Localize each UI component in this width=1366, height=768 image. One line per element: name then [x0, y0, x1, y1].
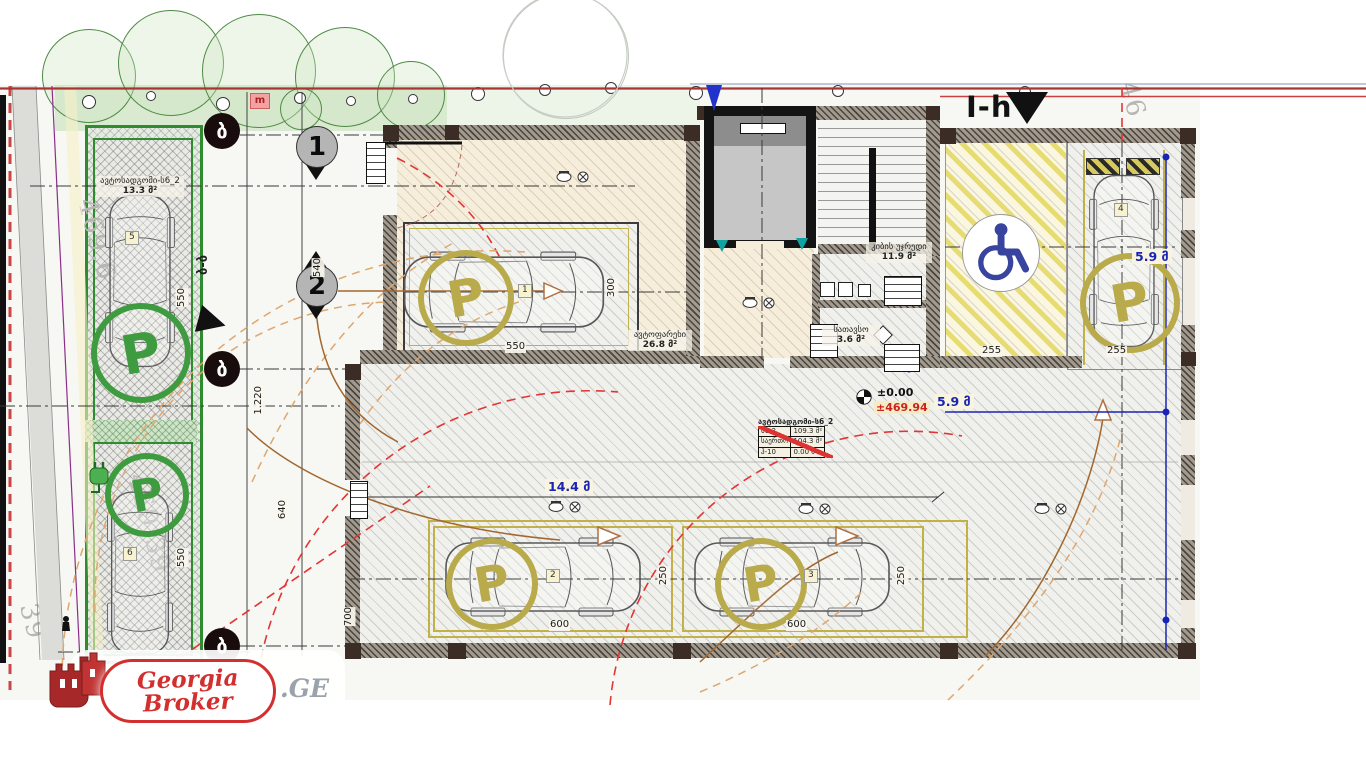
room-area-value: 13.3 მ² [123, 186, 157, 196]
room-name: სათავსო [822, 325, 880, 335]
metric-dimension-label: 5.9 მ [1132, 249, 1172, 264]
fixture-icons [1034, 500, 1072, 513]
room-area-value: 26.8 მ² [643, 340, 677, 350]
parking-number-plate: 1 [518, 284, 532, 298]
shrub-icon [408, 94, 418, 104]
wall [1181, 540, 1195, 600]
dimension-label: 300 [606, 278, 619, 297]
section-flag-label: I-h [966, 90, 1012, 124]
left-edge-bar [0, 95, 6, 663]
column-pier [345, 643, 361, 659]
area-table-title: ავტოსადგომი-ს6_2 [758, 417, 833, 426]
dimension-label: 540 [312, 258, 325, 277]
axis-bubble: ბ [204, 113, 240, 149]
spot-border [428, 636, 968, 638]
shrub-icon [216, 97, 230, 111]
ev-charger-icon [86, 460, 112, 496]
parking-number-plate: 3 [804, 569, 818, 583]
logo-suffix: .GE [280, 674, 329, 703]
column-pier [383, 125, 399, 141]
fixture-box [838, 282, 853, 297]
spot-border [1083, 150, 1085, 365]
column-pier [448, 643, 466, 659]
column-pier [345, 364, 361, 380]
room-area-label: კიბის უჯრედი11.9 მ² [866, 242, 932, 263]
area-table: ავტოსადგომი-ს6_2 ს6-2109.3 მ² საერთო104.… [758, 417, 833, 458]
dimension-label: 255 [981, 346, 1002, 357]
table-strike [758, 426, 833, 458]
parking-number-plate: 6 [123, 547, 137, 561]
section-cut-label: ბ-ბ [196, 255, 211, 275]
dimension-label: 250 [658, 566, 671, 585]
axis-bubble: ბ [204, 351, 240, 387]
fixture-icons [742, 294, 780, 307]
column-pier [940, 643, 958, 659]
wall [383, 215, 397, 364]
column-pier [926, 106, 940, 120]
wall [1181, 230, 1195, 258]
room-area-value: 3.6 მ² [837, 335, 865, 345]
dimension-label: 550 [505, 342, 526, 353]
fixture-icons [548, 498, 586, 511]
spot-border [409, 228, 629, 229]
metric-dimension-label: 5.9 მ [934, 394, 974, 409]
wheel-stop [1126, 158, 1160, 175]
spot-border [428, 520, 968, 522]
elevator-counterweight [740, 123, 786, 134]
dimension-label: 550 [176, 548, 189, 567]
fixture-icons [556, 168, 594, 181]
wall [1181, 143, 1195, 198]
floor-plan: PPPPPP123456ბბბ12 5503006002506002502552… [0, 0, 1366, 768]
utility-tag: m [250, 93, 270, 109]
wall [686, 140, 700, 356]
spot-border [682, 526, 924, 528]
wall [700, 356, 764, 368]
column-pier [1178, 643, 1196, 659]
spot-border [682, 526, 684, 632]
shrub-icon [146, 91, 156, 101]
dimension-label: 255 [1106, 346, 1127, 357]
spot-border [922, 526, 924, 632]
dimension-label: 600 [549, 620, 570, 631]
spot-border [966, 520, 968, 638]
wall [345, 643, 1196, 658]
dimension-label: 600 [786, 620, 807, 631]
schedule-tag [366, 142, 386, 184]
column-pier [684, 125, 700, 141]
shrub-icon [471, 87, 485, 101]
wall [926, 106, 940, 256]
wall [1181, 325, 1195, 420]
parking-number-plate: 5 [125, 231, 139, 245]
wheelchair-icon [968, 220, 1032, 284]
elevator-door-gap [736, 241, 784, 249]
fixture-box [820, 282, 835, 297]
level-marker-icon [855, 388, 873, 406]
column-pier [673, 643, 691, 659]
room-name: ავტოსადგომი-ს6_2 [96, 176, 184, 186]
metric-dimension-label: 14.4 მ [545, 479, 593, 494]
wall [940, 356, 1082, 368]
dimension-label: 250 [896, 566, 909, 585]
wheel-stop [1086, 158, 1120, 175]
wall [345, 516, 360, 658]
level-value: ±0.00 [877, 386, 913, 399]
spot-border [428, 520, 430, 638]
wall [926, 256, 940, 362]
shrub-icon [294, 92, 306, 104]
fixture-box [858, 284, 871, 297]
wall [940, 128, 1196, 143]
dimension-label: 1.220 [253, 386, 266, 415]
room-area-label: ავტოსადგომი-ს6_213.3 მ² [96, 176, 184, 197]
column-pier [1180, 128, 1196, 144]
room-name: ავტოფარეხი [628, 330, 692, 340]
column-pier [940, 128, 956, 144]
room-area-label: ავტოფარეხი26.8 მ² [628, 330, 692, 351]
floor [85, 420, 197, 442]
dimension-label: 640 [277, 500, 290, 519]
column-pier [445, 125, 459, 140]
schedule-tag [884, 276, 922, 306]
shrub-icon [605, 82, 617, 94]
dimension-label: 550 [176, 288, 189, 307]
level-absolute-value: ±469.94 [874, 401, 930, 414]
spot-border [628, 228, 629, 346]
wall [345, 364, 360, 480]
entrance-arrow-icon [706, 85, 722, 111]
wall [360, 350, 700, 364]
column-pier [1181, 352, 1196, 366]
spot-border [433, 526, 673, 528]
shrub-icon [689, 86, 703, 100]
stair-center-wall [869, 148, 876, 250]
wall [383, 125, 700, 140]
logo: Georgia Broker [100, 659, 276, 723]
logo-line2: Broker [143, 689, 233, 715]
spot-border [671, 526, 673, 632]
wall [1181, 628, 1195, 644]
room-area-label: სათავსო3.6 მ² [822, 325, 880, 346]
parking-number-plate: 2 [546, 569, 560, 583]
room-area-value: 11.9 მ² [882, 252, 916, 262]
shrub-icon [82, 95, 96, 109]
wall [1181, 455, 1195, 485]
parking-number-plate: 4 [1114, 203, 1128, 217]
shrub-icon [346, 96, 356, 106]
shrub-icon [832, 85, 844, 97]
schedule-tag [350, 481, 368, 519]
shrub-icon [539, 84, 551, 96]
dimension-label: 700 [343, 607, 356, 626]
spot-border [433, 526, 435, 632]
schedule-tag [884, 344, 920, 372]
room-name: კიბის უჯრედი [866, 242, 932, 252]
section-marker: 1 [296, 126, 338, 168]
fixture-icons [798, 500, 836, 513]
